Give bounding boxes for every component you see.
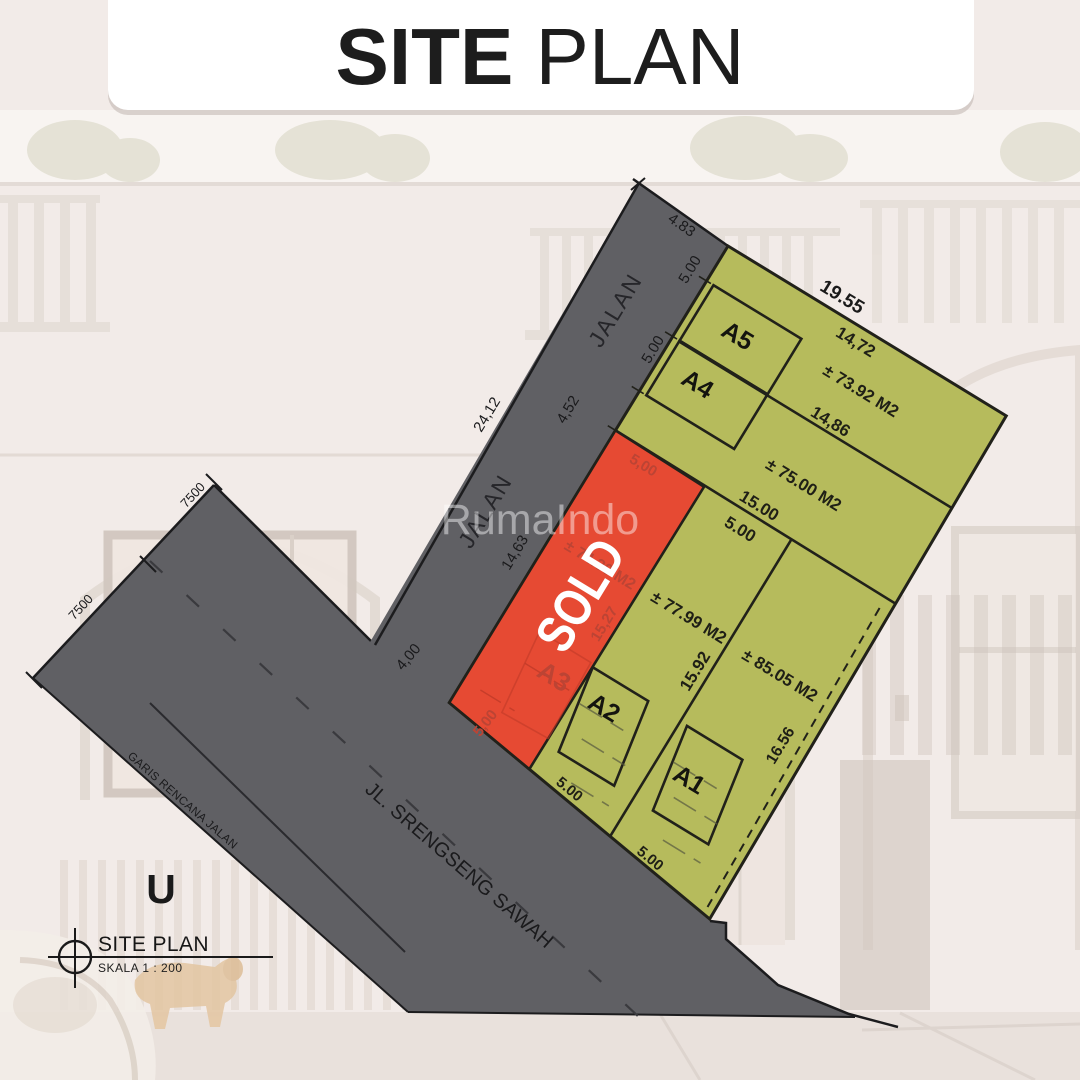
svg-text:SITE PLAN: SITE PLAN <box>335 12 744 101</box>
svg-text:SITE PLAN: SITE PLAN <box>98 933 209 956</box>
svg-text:SKALA 1 : 200: SKALA 1 : 200 <box>98 961 183 975</box>
svg-text:U: U <box>146 866 176 912</box>
svg-text:RumaIndo: RumaIndo <box>441 496 639 544</box>
